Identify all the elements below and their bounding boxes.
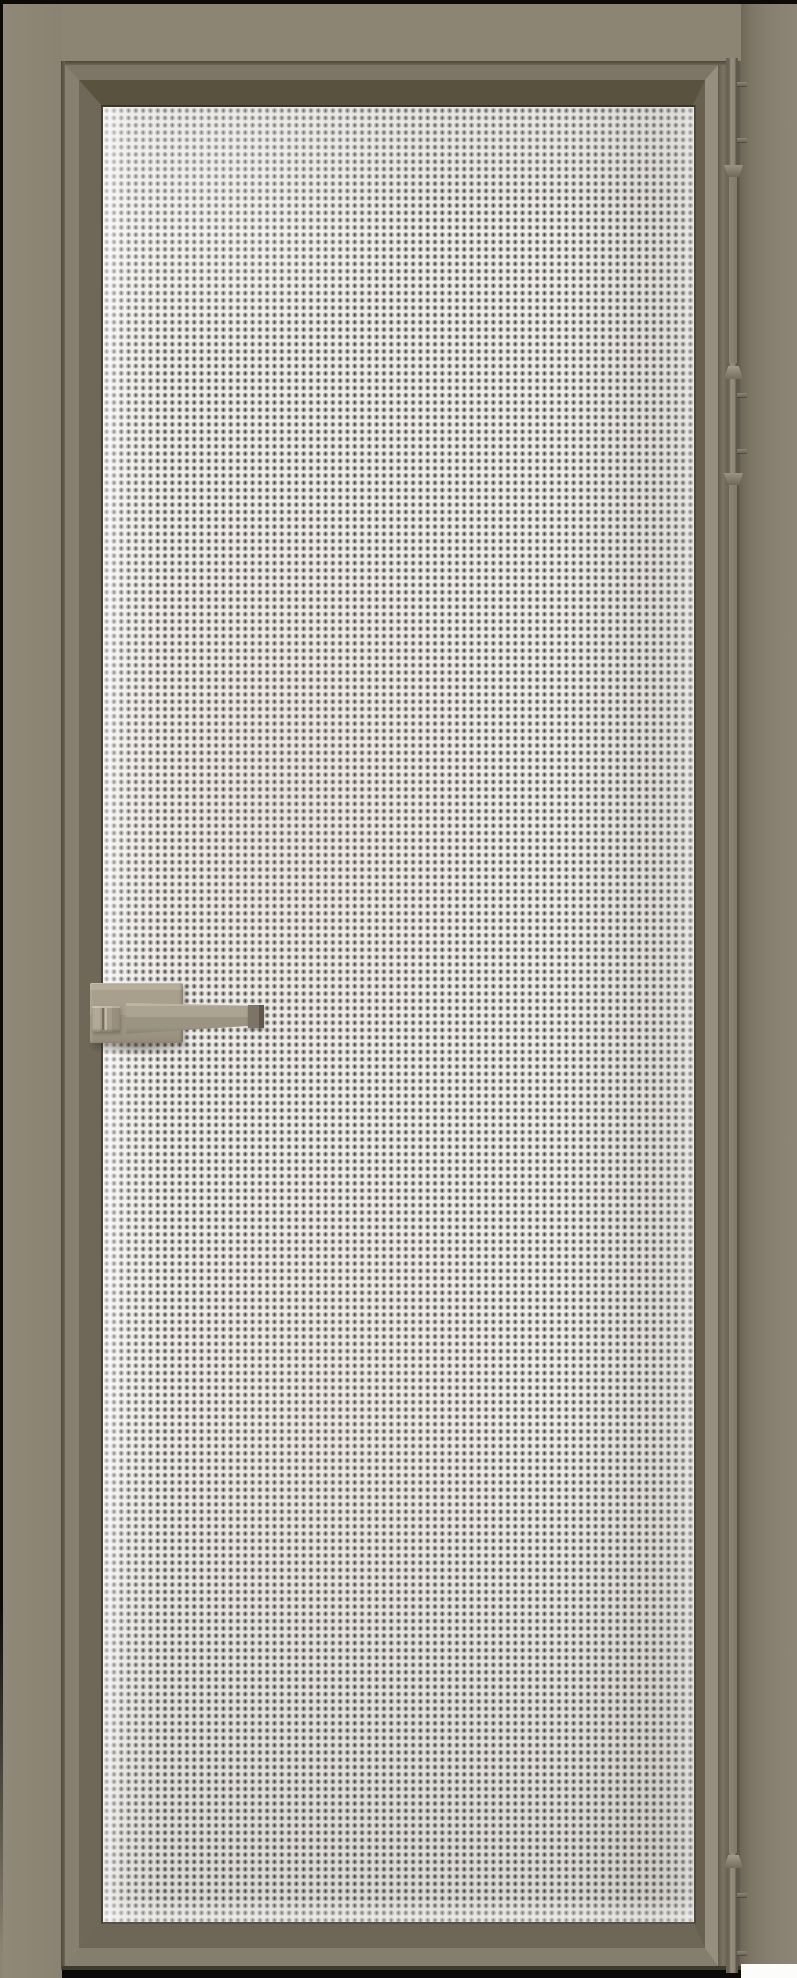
frame-gap-line-right (737, 61, 741, 1968)
wall-left-of-frame (3, 4, 62, 1978)
hinge-pin (737, 138, 747, 142)
hinge-pin (737, 82, 747, 86)
lever-end-cap (248, 1005, 264, 1028)
hinge-pin (737, 1951, 747, 1955)
hinge-pin (737, 393, 747, 397)
hinge-top (726, 58, 738, 177)
hinge-pin (737, 449, 747, 453)
floor-bottom-right (741, 1964, 797, 1978)
leaf-frame-gap-strip (718, 65, 729, 1966)
door-product-photo (0, 0, 797, 1978)
wall-right-of-frame (741, 4, 797, 1966)
handle-shadow (92, 1042, 194, 1056)
hinge-middle (726, 363, 738, 485)
left-edge-shadow-gap (0, 0, 3, 1955)
thumbturn-knob (92, 1006, 120, 1032)
frame-outer-strip (729, 65, 737, 1966)
door-handle (88, 978, 268, 1060)
wall-above-frame (3, 4, 741, 62)
top-edge-shadow-gap (0, 0, 797, 4)
hinge-bottom (726, 1853, 738, 1973)
lever-handle (126, 1003, 248, 1034)
bottom-door-gap-shadow (62, 1970, 741, 1978)
hinge-pin (737, 1893, 747, 1897)
